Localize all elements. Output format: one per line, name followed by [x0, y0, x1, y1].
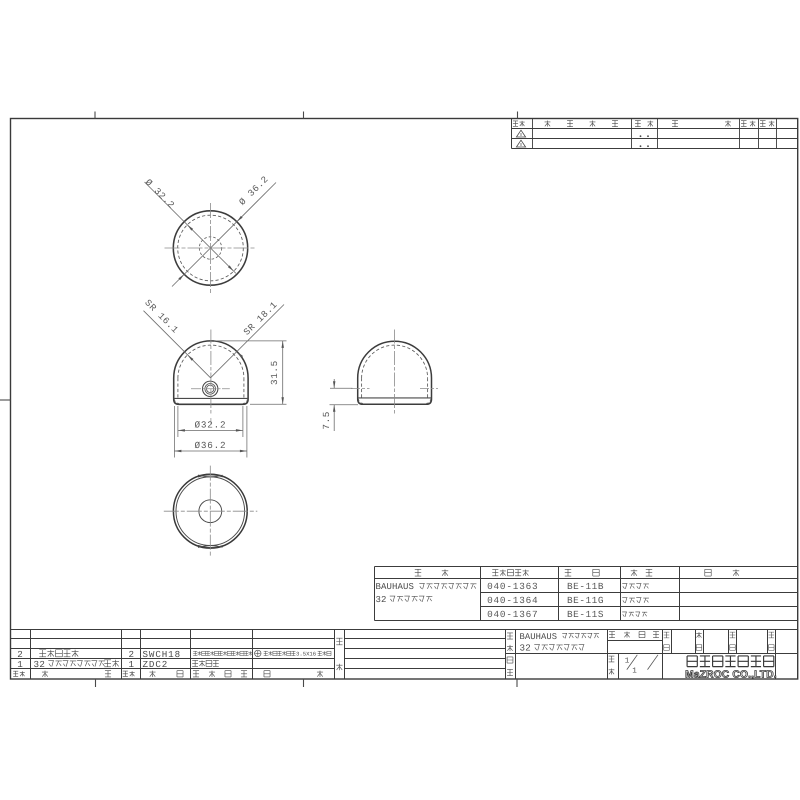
- svg-text:BE-11B: BE-11B: [567, 581, 604, 592]
- svg-text:32: 32: [520, 643, 531, 654]
- svg-text:BAUHAUS: BAUHAUS: [376, 582, 415, 592]
- svg-text:1: 1: [17, 659, 23, 670]
- svg-text:32: 32: [34, 659, 46, 670]
- svg-text:31.5: 31.5: [269, 360, 280, 385]
- svg-text:3.5X16: 3.5X16: [296, 650, 316, 657]
- svg-text:1: 1: [632, 668, 637, 676]
- svg-text:ZDC2: ZDC2: [143, 659, 169, 670]
- svg-text:1: 1: [128, 659, 134, 670]
- svg-text:BE-11S: BE-11S: [567, 609, 604, 620]
- svg-text:MaZROC CO.,LTD.: MaZROC CO.,LTD.: [685, 669, 777, 680]
- svg-text:040-1363: 040-1363: [487, 581, 538, 592]
- svg-text:Ø32.2: Ø32.2: [194, 419, 226, 430]
- svg-text:Ø36.2: Ø36.2: [194, 440, 226, 451]
- svg-text:040-1367: 040-1367: [487, 609, 538, 620]
- svg-text:1: 1: [625, 657, 630, 665]
- svg-text:BAUHAUS: BAUHAUS: [520, 632, 558, 642]
- svg-text:040-1364: 040-1364: [487, 595, 538, 606]
- svg-text:BE-11G: BE-11G: [567, 595, 604, 606]
- svg-text:7.5: 7.5: [321, 411, 332, 430]
- svg-text:32: 32: [376, 595, 387, 605]
